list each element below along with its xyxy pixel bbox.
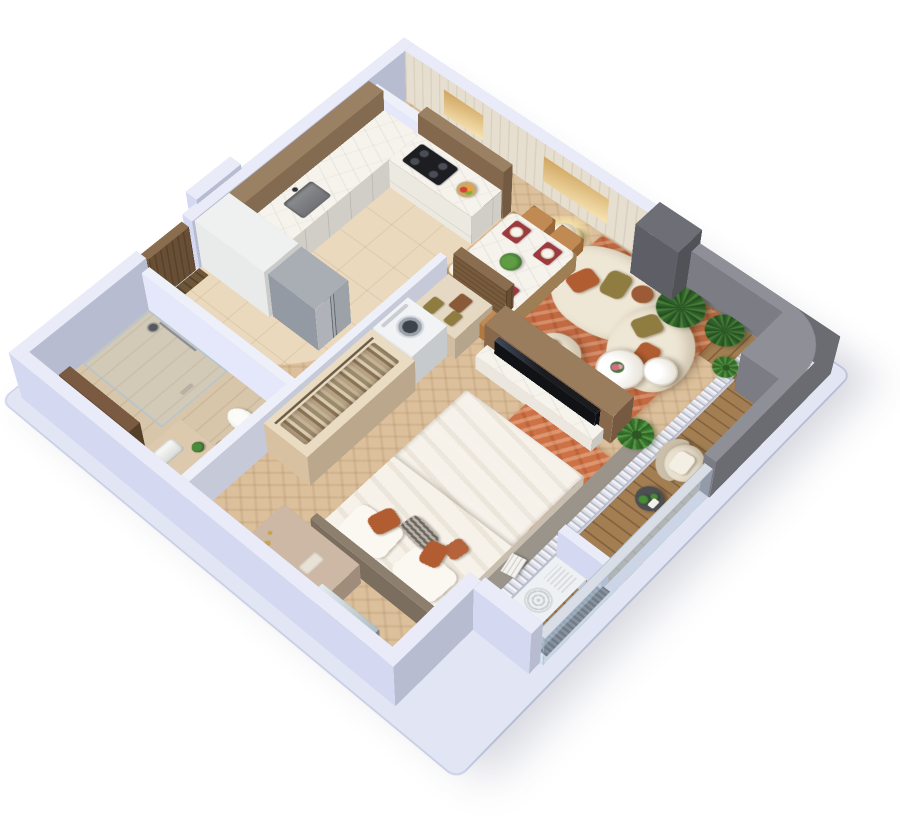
apartment-3d-scene (22, 87, 831, 757)
placemat-detail (532, 241, 563, 266)
fruitbowl-detail (452, 179, 481, 201)
flower-detail (607, 359, 627, 375)
shower-head-detail (146, 322, 160, 333)
tray-detail (298, 552, 325, 576)
pillow-detail (442, 537, 471, 562)
floor-plan-render (0, 0, 900, 840)
drain-detail (179, 383, 194, 396)
ac-vents-detail (543, 564, 577, 593)
dot-detail (267, 530, 274, 536)
balcony-west-wall (473, 619, 540, 675)
placemat-detail (501, 220, 532, 244)
centerpiece-detail (495, 249, 527, 274)
mini-plant-detail (189, 440, 207, 455)
